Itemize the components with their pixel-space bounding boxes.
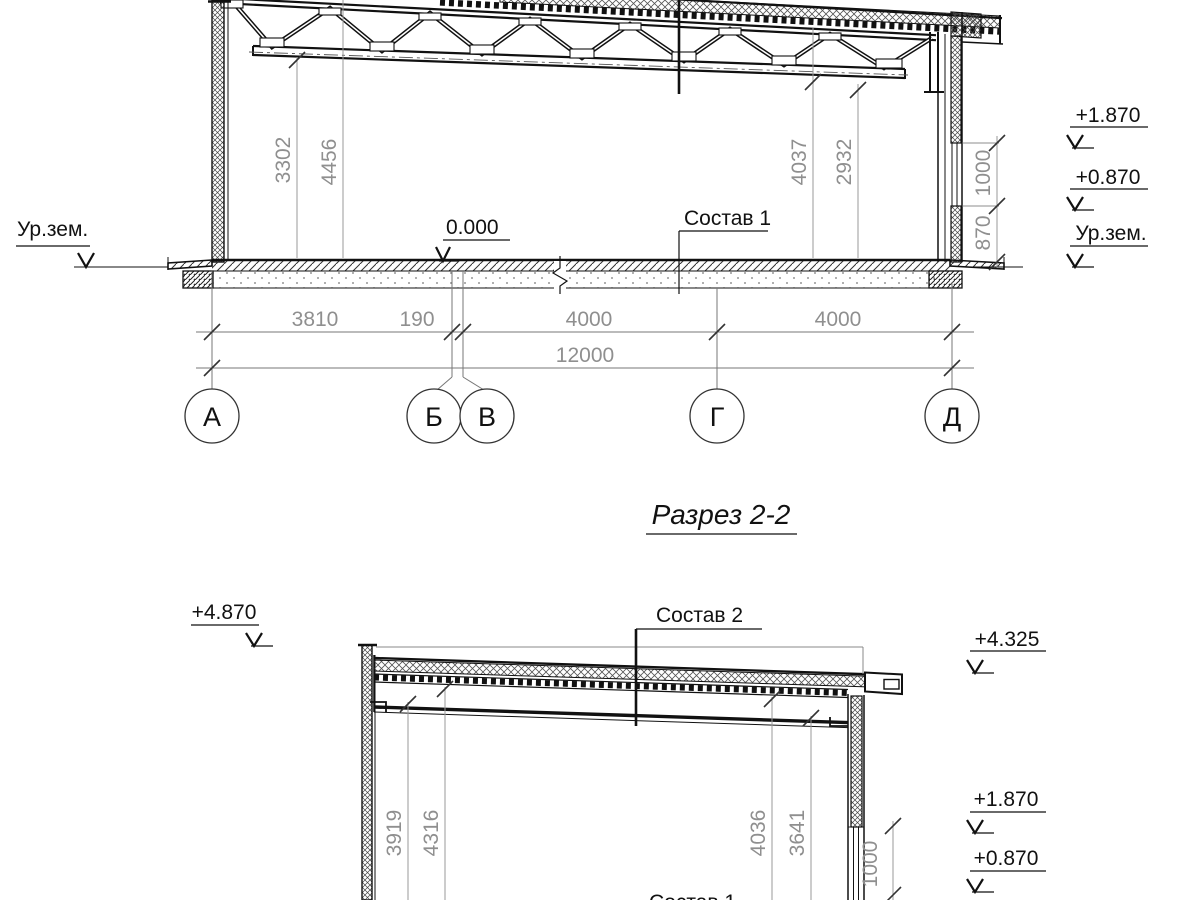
sostav1-partial-text: Состав 1 bbox=[649, 891, 736, 900]
zero-level-mark: 0.000 bbox=[436, 216, 510, 261]
level-4870-text: +4.870 bbox=[192, 601, 257, 624]
axis-v: В bbox=[478, 402, 496, 432]
dim-3810: 3810 bbox=[292, 308, 339, 331]
dim-190: 190 bbox=[399, 308, 434, 331]
dim-870-wall: 870 bbox=[972, 215, 995, 250]
dim-4000-2: 4000 bbox=[815, 308, 862, 331]
axis-b: Б bbox=[425, 402, 443, 432]
dim-2932: 2932 bbox=[833, 139, 856, 186]
drawing-canvas: 3302 4456 4037 2932 1000 870 0.000 Соста… bbox=[0, 0, 1200, 900]
dim-1000-wall-2: 1000 bbox=[859, 841, 882, 888]
level-4870: +4.870 bbox=[191, 601, 273, 646]
level-marks-right-2: +4.325 +1.870 +0.870 bbox=[967, 628, 1046, 892]
axis-g: Г bbox=[710, 402, 725, 432]
ground-left-text: Ур.зем. bbox=[17, 218, 88, 241]
dim-3641: 3641 bbox=[786, 810, 809, 857]
dim-4037: 4037 bbox=[788, 139, 811, 186]
zero-level-text: 0.000 bbox=[446, 216, 499, 239]
level-4325: +4.325 bbox=[975, 628, 1040, 651]
level-1870-b: +1.870 bbox=[974, 788, 1039, 811]
dim-4456: 4456 bbox=[318, 139, 341, 186]
ground-right-text: Ур.зем. bbox=[1075, 222, 1146, 245]
title-text: Разрез 2-2 bbox=[652, 499, 791, 530]
left-wall-1 bbox=[208, 0, 231, 262]
axis-d: Д bbox=[943, 402, 961, 432]
floor-composition-label: Состав 1 bbox=[679, 0, 771, 294]
section-2: Состав 2 +4.870 +4.325 +1.870 +0.870 bbox=[191, 601, 1046, 900]
level-0870-b: +0.870 bbox=[974, 847, 1039, 870]
break-symbol bbox=[553, 256, 567, 294]
dim-12000: 12000 bbox=[556, 344, 614, 367]
wall-dims-1: 1000 870 bbox=[972, 135, 1005, 270]
dim-4000-1: 4000 bbox=[566, 308, 613, 331]
height-dims-1 bbox=[289, 0, 866, 258]
level-0870: +0.870 bbox=[1076, 166, 1141, 189]
axis-a: А bbox=[203, 402, 221, 432]
level-marks-right-1: +1.870 +0.870 Ур.зем. bbox=[1067, 104, 1148, 267]
dim-1000-wall: 1000 bbox=[972, 150, 995, 197]
floor-slab-1 bbox=[74, 256, 1023, 294]
roof-composition-label: Состав 2 bbox=[636, 604, 762, 726]
sostav2-text: Состав 2 bbox=[656, 604, 743, 627]
dim-4036: 4036 bbox=[747, 810, 770, 857]
level-1870: +1.870 bbox=[1076, 104, 1141, 127]
sostav1-text: Состав 1 bbox=[684, 207, 771, 230]
wall-dim-2: 1000 bbox=[859, 818, 901, 900]
dim-3302: 3302 bbox=[272, 137, 295, 184]
ground-level-left: Ур.зем. bbox=[16, 218, 94, 267]
roof-fascia bbox=[865, 673, 902, 695]
dim-3919: 3919 bbox=[383, 810, 406, 857]
axis-bubbles: А Б В Г Д bbox=[185, 389, 979, 443]
dim-4316: 4316 bbox=[420, 810, 443, 857]
drawing-title: Разрез 2-2 bbox=[646, 499, 797, 534]
section-1: 3302 4456 4037 2932 1000 870 0.000 Соста… bbox=[16, 0, 1148, 443]
